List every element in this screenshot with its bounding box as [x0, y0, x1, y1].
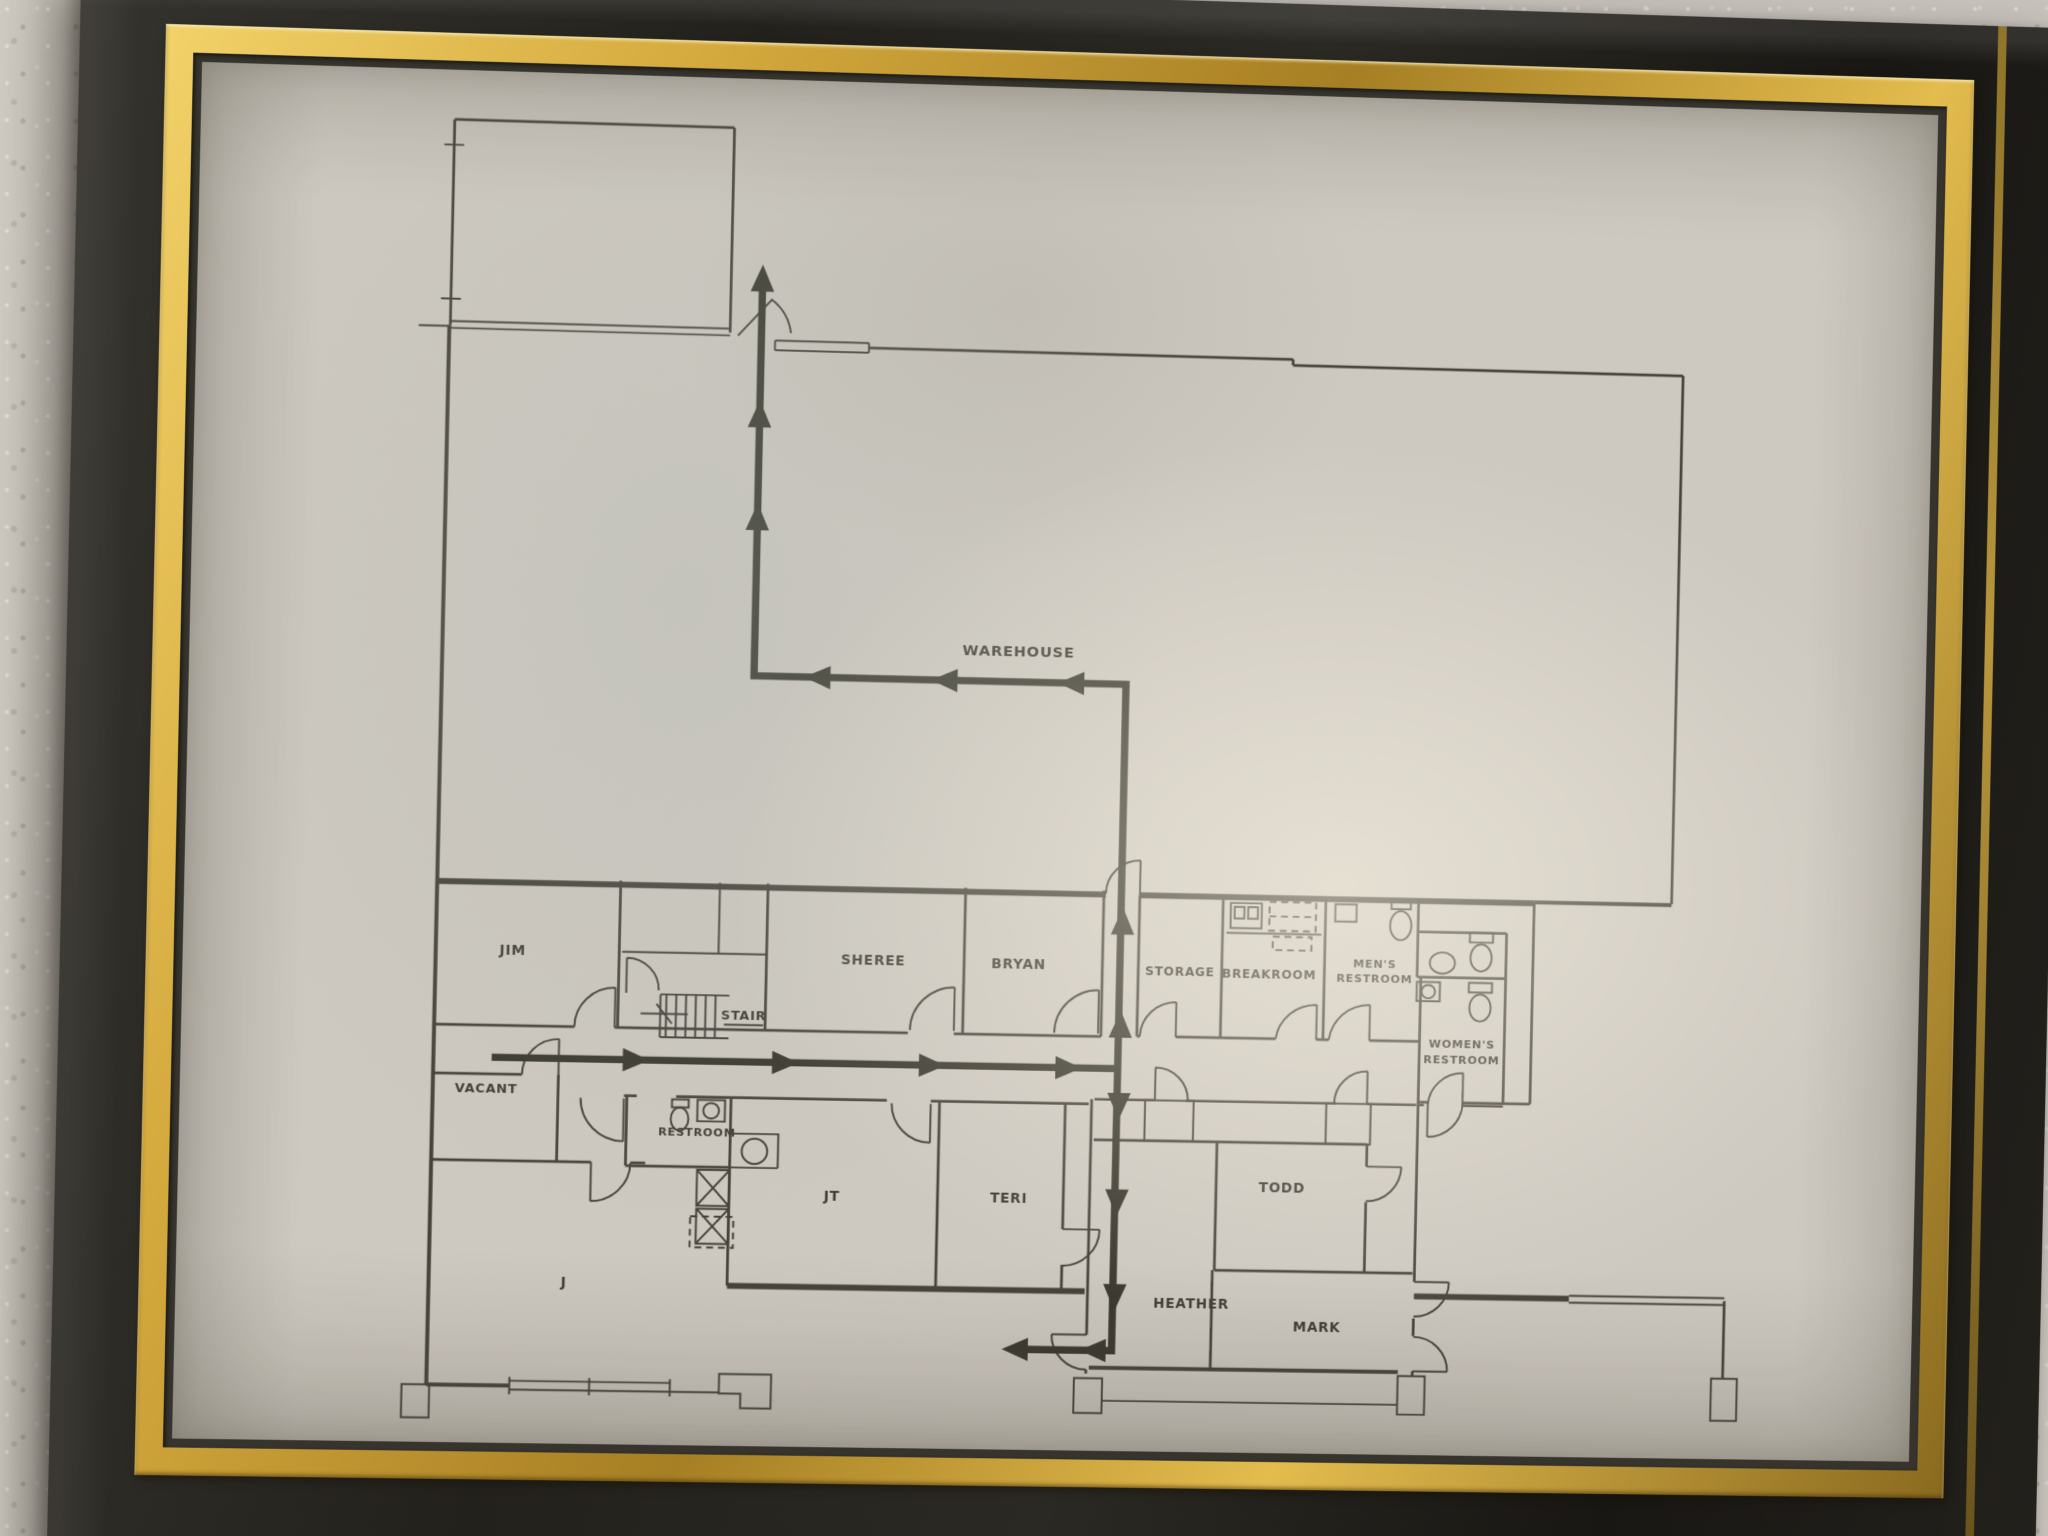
picture-frame: WAREHOUSE JIM STAIR SHEREE BRYAN STORAGE… [47, 0, 2048, 1536]
room-label-bryan: BRYAN [991, 956, 1046, 973]
wall-exterior [426, 325, 1683, 1402]
wall-restrooms [1408, 901, 1534, 1378]
wall-warehouse-south [428, 881, 1577, 1299]
room-label-j: J [560, 1275, 567, 1291]
frame-inner-lip: WAREHOUSE JIM STAIR SHEREE BRYAN STORAGE… [163, 53, 1947, 1471]
room-label-mens-restroom-line2: RESTROOM [1336, 971, 1413, 986]
floorplan-paper: WAREHOUSE JIM STAIR SHEREE BRYAN STORAGE… [172, 62, 1938, 1462]
room-label-warehouse: WAREHOUSE [962, 643, 1074, 662]
door-swings [516, 293, 1480, 1375]
wall-entry-dock [775, 341, 869, 353]
room-label-mark: MARK [1292, 1319, 1341, 1335]
room-label-storage: STORAGE [1145, 965, 1215, 980]
room-label-teri: TERI [990, 1191, 1028, 1207]
floorplan-drawing: WAREHOUSE JIM STAIR SHEREE BRYAN STORAGE… [172, 62, 1938, 1462]
wall-thin-details [401, 1278, 1739, 1436]
evacuation-route [485, 281, 1134, 1351]
utility-closets [695, 1133, 778, 1245]
room-label-vacant: VACANT [455, 1081, 518, 1097]
room-label-restroom: RESTROOM [658, 1124, 736, 1139]
room-label-womens-restroom-line1: WOMEN'S [1429, 1037, 1496, 1052]
room-label-jim: JIM [498, 942, 526, 958]
room-label-breakroom: BREAKROOM [1222, 967, 1317, 982]
room-label-todd: TODD [1259, 1180, 1306, 1196]
room-label-heather: HEATHER [1153, 1296, 1229, 1313]
room-label-sheree: SHEREE [841, 952, 906, 969]
room-label-jt: JT [823, 1189, 840, 1205]
room-label-mens-restroom-line1: MEN'S [1353, 956, 1396, 970]
framed-floorplan-photo: WAREHOUSE JIM STAIR SHEREE BRYAN STORAGE… [0, 0, 2048, 1536]
wall-warehouse-top-east [857, 348, 1683, 904]
wall-tower-bottom [419, 144, 734, 336]
wall-tower [450, 119, 734, 332]
closet-alcove-right [1325, 1103, 1370, 1144]
room-label-stair: STAIR [721, 1009, 767, 1025]
room-label-womens-restroom-line2: RESTROOM [1423, 1052, 1499, 1067]
closet-alcove-left [1144, 1100, 1193, 1141]
frame-gold-trim: WAREHOUSE JIM STAIR SHEREE BRYAN STORAGE… [134, 24, 1974, 1499]
